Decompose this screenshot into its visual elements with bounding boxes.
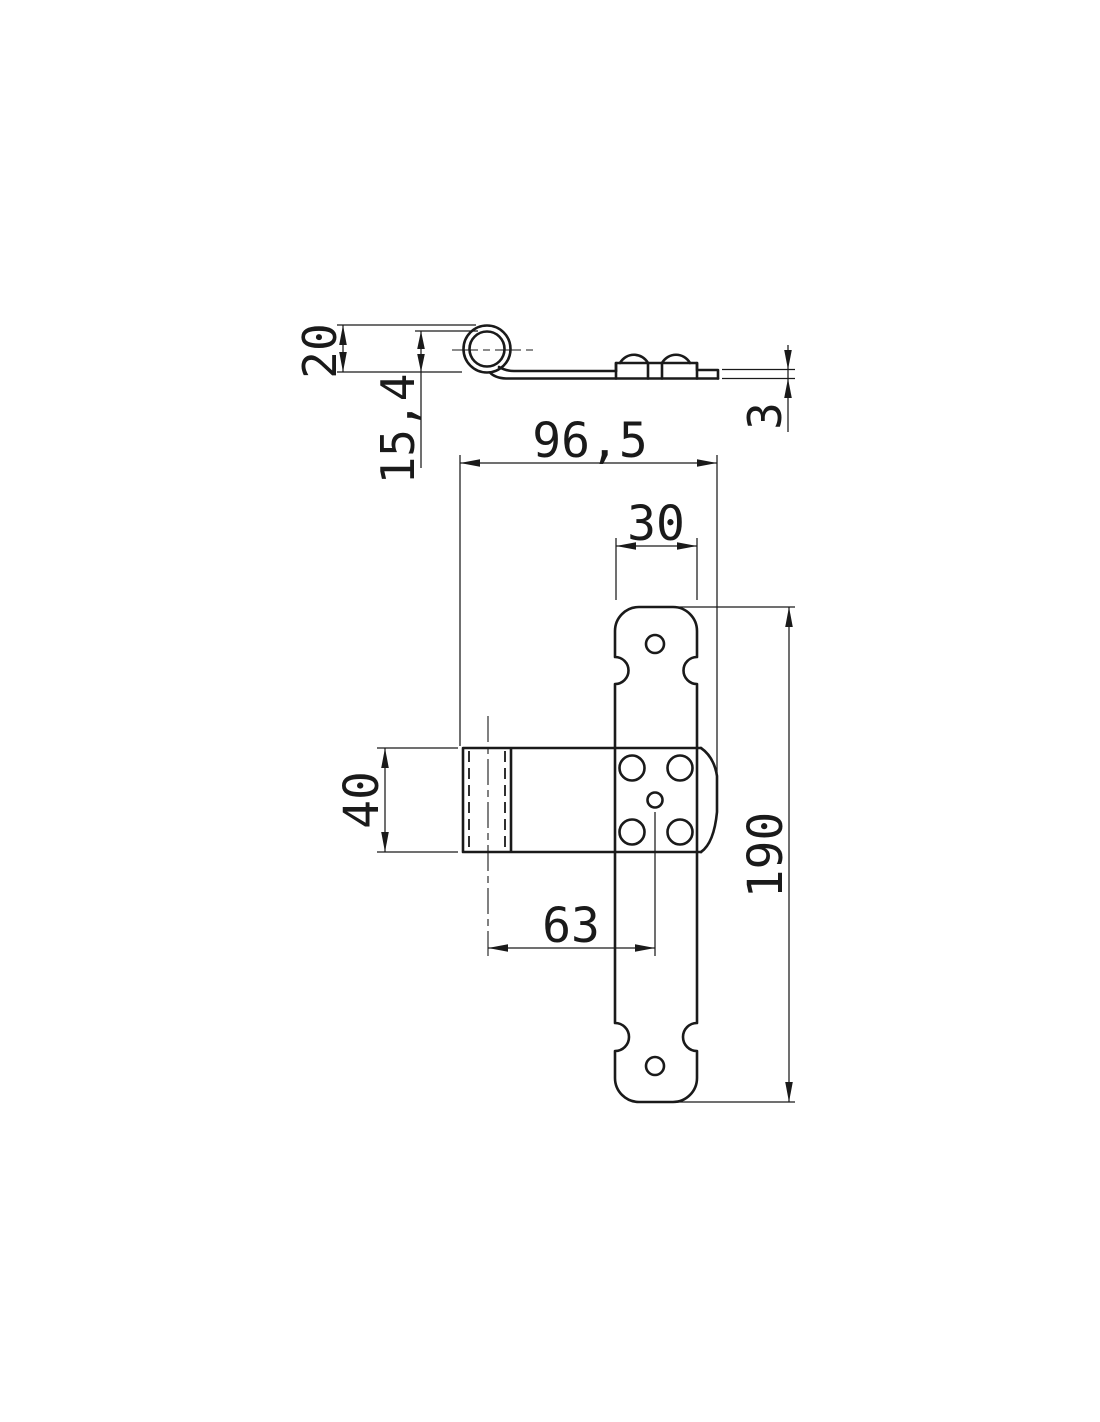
screw-hole-pad-top-right — [668, 756, 693, 781]
arrow-down-154 — [417, 354, 425, 372]
dim-label-barrel-height: 20 — [293, 323, 347, 378]
arrow-up-190 — [785, 607, 793, 627]
flap-outline — [463, 748, 701, 852]
dim-label-flap-width: 40 — [334, 771, 390, 829]
arrow-left-965 — [460, 459, 480, 467]
dim-label-flap-length: 96,5 — [532, 413, 648, 469]
arrow-right-63 — [635, 944, 655, 952]
dim-label-strap-width: 30 — [627, 496, 685, 552]
arrow-up-3 — [784, 379, 792, 399]
screw-hole-top — [646, 635, 664, 653]
arrow-right-965 — [697, 459, 717, 467]
arrow-up-40 — [381, 748, 389, 768]
screw-pad-profile — [616, 363, 718, 379]
screw-hole-bottom — [646, 1057, 664, 1075]
strap-outline — [615, 607, 697, 1102]
screw-hole-pad-top-left — [620, 756, 645, 781]
plate-top-surface — [499, 367, 616, 371]
dimension-material-thickness: 3 — [722, 345, 795, 432]
dimension-flap-width: 40 — [334, 748, 458, 852]
dim-label-pin-offset: 15,4 — [371, 374, 425, 485]
dim-label-material-thickness: 3 — [738, 402, 792, 430]
front-view — [463, 607, 717, 1102]
center-pilot-hole — [648, 793, 663, 808]
extension-lines-20 — [337, 325, 476, 372]
dimension-flap-length: 96,5 — [460, 413, 717, 773]
technical-drawing-canvas: 20 15,4 3 96,5 30 40 — [0, 0, 1100, 1422]
screw-hole-pad-bottom-left — [620, 820, 645, 845]
dimension-pin-to-center-hole: 63 — [488, 812, 655, 956]
dim-label-pin-to-center-hole: 63 — [542, 898, 600, 954]
arrow-down-40 — [381, 832, 389, 852]
pad-edge-lines — [616, 363, 697, 379]
dimension-strap-width: 30 — [616, 496, 697, 600]
side-profile-view — [452, 326, 718, 379]
arrow-down-3 — [784, 350, 792, 370]
t-hinge-drawing: 20 15,4 3 96,5 30 40 — [0, 0, 1100, 1422]
flap-decorative-tip — [701, 748, 717, 852]
dim-label-strap-length: 190 — [738, 812, 794, 899]
extension-lines-3 — [722, 370, 795, 379]
arrow-down-190 — [785, 1082, 793, 1102]
arrow-left-63 — [488, 944, 508, 952]
barrel-pin-hole-circle — [470, 332, 505, 367]
arrow-up-154 — [417, 331, 425, 349]
screw-hole-pad-bottom-right — [668, 820, 693, 845]
plate-underside — [490, 373, 718, 379]
dimension-pin-offset: 15,4 — [371, 331, 478, 484]
